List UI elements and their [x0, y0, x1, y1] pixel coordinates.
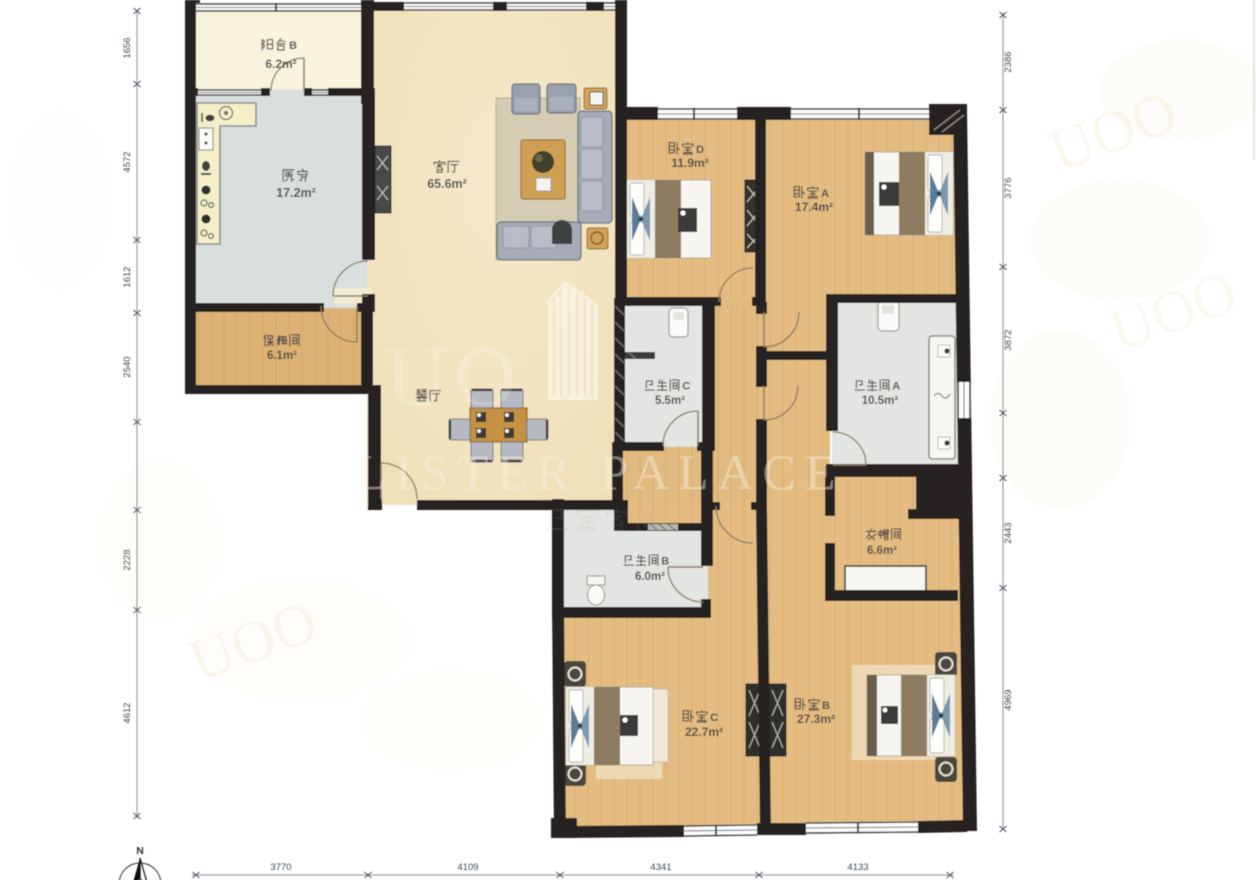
- svg-text:N: N: [136, 845, 144, 857]
- svg-text:2540: 2540: [122, 356, 133, 377]
- svg-text:C: C: [682, 380, 690, 392]
- svg-text:1612: 1612: [122, 266, 133, 287]
- svg-text:3776: 3776: [1003, 177, 1014, 198]
- svg-text:6.1m²: 6.1m²: [267, 350, 297, 362]
- svg-text:4133: 4133: [847, 862, 868, 873]
- svg-text:10.5m²: 10.5m²: [862, 395, 899, 407]
- svg-text:2228: 2228: [122, 549, 133, 570]
- svg-text:4969: 4969: [1003, 689, 1014, 710]
- svg-text:65.6m²: 65.6m²: [427, 177, 467, 191]
- svg-text:1656: 1656: [122, 37, 133, 58]
- svg-text:4341: 4341: [650, 862, 671, 873]
- svg-text:4109: 4109: [457, 862, 478, 873]
- svg-text:3872: 3872: [1003, 329, 1014, 350]
- svg-text:17.2m²: 17.2m²: [276, 186, 316, 200]
- svg-text:6.6m²: 6.6m²: [867, 545, 897, 557]
- svg-text:B: B: [289, 40, 297, 52]
- svg-text:D: D: [696, 144, 704, 156]
- svg-text:17.4m²: 17.4m²: [795, 200, 833, 214]
- svg-text:22.7m²: 22.7m²: [685, 725, 723, 739]
- svg-text:LISTER PALACE: LISTER PALACE: [356, 444, 845, 500]
- svg-text:4612: 4612: [122, 702, 133, 723]
- svg-text:3770: 3770: [270, 862, 291, 873]
- svg-text:6.0m²: 6.0m²: [635, 571, 665, 583]
- svg-text:5.5m²: 5.5m²: [655, 395, 685, 407]
- svg-text:B: B: [661, 555, 669, 567]
- svg-text:2386: 2386: [1003, 51, 1014, 72]
- svg-text:2443: 2443: [1003, 522, 1014, 543]
- svg-text:4572: 4572: [122, 151, 133, 172]
- svg-text:UO: UO: [386, 330, 525, 424]
- svg-text:B: B: [822, 700, 830, 712]
- svg-text:11.9m²: 11.9m²: [671, 156, 708, 170]
- svg-text:A: A: [821, 188, 829, 200]
- svg-text:6.2m²: 6.2m²: [265, 57, 296, 71]
- svg-text:C: C: [710, 712, 718, 724]
- svg-text:27.3m²: 27.3m²: [797, 712, 835, 726]
- svg-text:A: A: [892, 380, 900, 392]
